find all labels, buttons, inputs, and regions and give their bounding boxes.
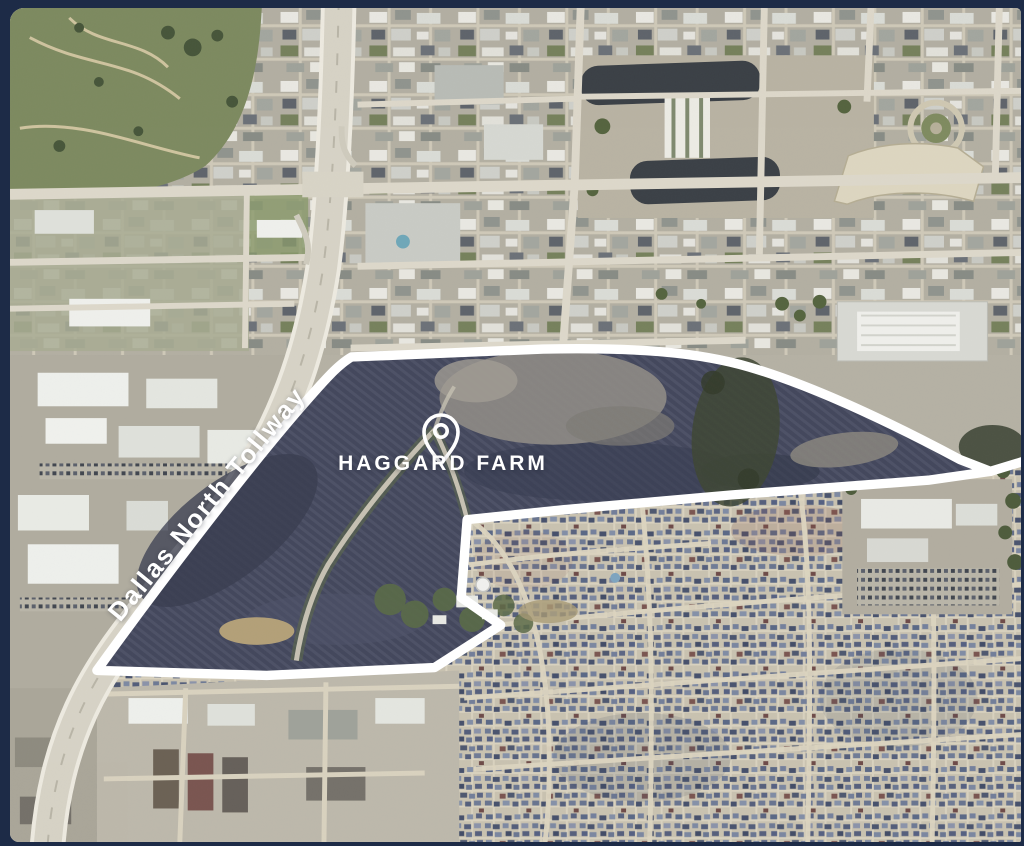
slide-background: HAGGARD FARM Dallas North Tollway [0, 0, 1024, 846]
photo-grain [10, 8, 1021, 842]
aerial-basemap [10, 8, 1021, 842]
aerial-map [10, 8, 1021, 842]
